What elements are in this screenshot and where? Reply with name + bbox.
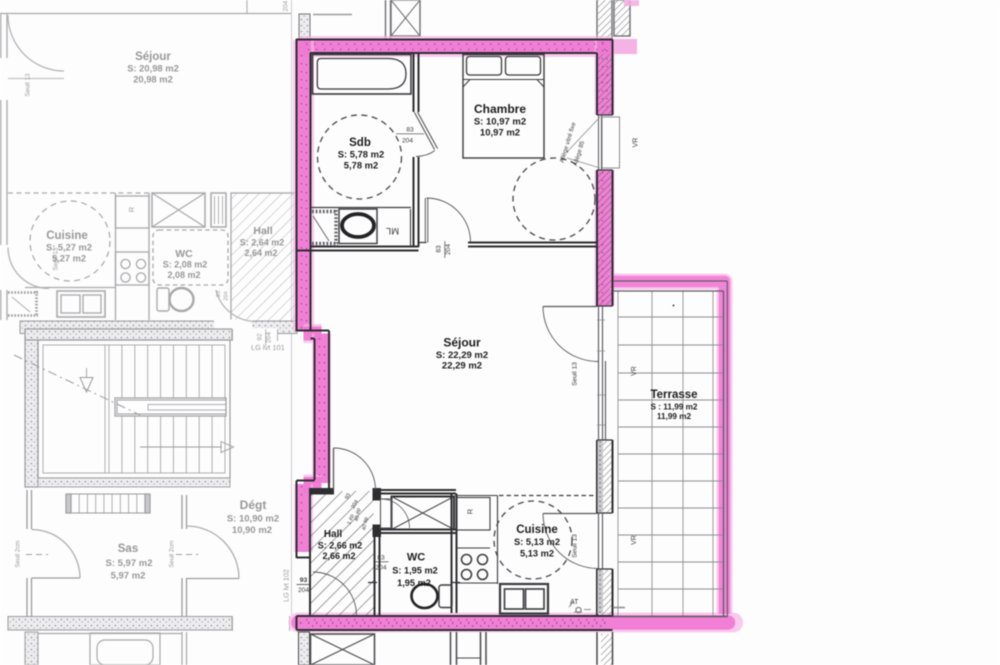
svg-text:Seuil 13: Seuil 13 (572, 534, 579, 558)
svg-text:92: 92 (257, 333, 264, 341)
svg-text:ML: ML (386, 225, 399, 236)
svg-text:S: 2,66 m2: S: 2,66 m2 (318, 541, 363, 551)
svg-text:Seuil 13: Seuil 13 (572, 362, 579, 386)
svg-text:10,97 m2: 10,97 m2 (480, 128, 520, 139)
svg-text:10,90 m2: 10,90 m2 (232, 525, 272, 536)
svg-text:WC: WC (407, 552, 425, 564)
svg-text:S: 5,78 m2: S: 5,78 m2 (338, 149, 384, 160)
svg-text:2,08 m2: 2,08 m2 (167, 270, 200, 280)
svg-text:83: 83 (377, 555, 385, 562)
svg-text:204: 204 (445, 244, 452, 255)
svg-text:Seuil 2cm: Seuil 2cm (169, 540, 176, 567)
svg-text:5,78 m2: 5,78 m2 (344, 160, 378, 171)
svg-text:1,95 m2: 1,95 m2 (397, 578, 431, 588)
svg-text:93: 93 (300, 577, 308, 584)
svg-text:S: 20,98 m2: S: 20,98 m2 (127, 63, 179, 74)
svg-text:VR: VR (631, 535, 638, 545)
svg-text:204: 204 (266, 332, 273, 343)
svg-text:R: R (127, 206, 136, 212)
svg-text:S : 11,99 m2: S : 11,99 m2 (651, 403, 698, 412)
svg-text:Terrasse: Terrasse (650, 389, 697, 401)
svg-text:LG lvt 102: LG lvt 102 (282, 569, 291, 602)
svg-text:83: 83 (406, 127, 414, 134)
svg-text:83: 83 (436, 245, 443, 253)
svg-text:204: 204 (283, 0, 290, 11)
svg-text:S: 1,95 m2: S: 1,95 m2 (392, 566, 437, 576)
svg-text:S: 2,08 m2: S: 2,08 m2 (163, 260, 208, 270)
svg-text:Chambre: Chambre (474, 102, 526, 116)
svg-text:Cuisine: Cuisine (516, 524, 558, 536)
svg-text:20,98 m2: 20,98 m2 (133, 74, 173, 85)
svg-text:R: R (466, 508, 475, 514)
svg-text:2,66 m2: 2,66 m2 (322, 551, 355, 561)
svg-text:VR: VR (633, 138, 640, 148)
svg-text:204: 204 (402, 138, 413, 145)
svg-text:Séjour: Séjour (443, 336, 481, 350)
svg-text:204: 204 (298, 587, 309, 594)
svg-text:WC: WC (175, 248, 193, 260)
svg-text:S: 10,97 m2: S: 10,97 m2 (474, 117, 526, 128)
svg-text:Sas: Sas (118, 543, 138, 555)
svg-text:Hall: Hall (324, 529, 343, 540)
svg-text:S: 2,64 m2: S: 2,64 m2 (240, 238, 285, 248)
svg-text:Seuil 13: Seuil 13 (25, 73, 32, 97)
svg-text:Dégt: Dégt (240, 498, 267, 512)
svg-text:204: 204 (375, 565, 386, 572)
svg-text:204: 204 (224, 291, 230, 300)
svg-text:S: 22,29 m2: S: 22,29 m2 (436, 350, 488, 361)
svg-text:83: 83 (216, 291, 222, 297)
svg-text:Seuil 2cm: Seuil 2cm (15, 540, 22, 567)
svg-text:5,97 m2: 5,97 m2 (111, 571, 146, 582)
svg-text:Hall: Hall (253, 225, 272, 237)
svg-text:S: 5,97 m2: S: 5,97 m2 (106, 558, 153, 569)
svg-text:VR: VR (631, 366, 638, 376)
svg-text:5,13 m2: 5,13 m2 (520, 549, 554, 559)
svg-text:S: 10,90 m2: S: 10,90 m2 (227, 514, 279, 525)
svg-text:AT: AT (570, 599, 579, 606)
svg-text:Seuil 13: Seuil 13 (53, 247, 60, 271)
svg-text:2,64 m2: 2,64 m2 (244, 248, 277, 258)
svg-text:11,99 m2: 11,99 m2 (657, 412, 692, 421)
svg-text:Séjour: Séjour (135, 51, 171, 63)
svg-text:22,29 m2: 22,29 m2 (442, 361, 482, 372)
svg-text:LG lvt 101: LG lvt 101 (251, 343, 285, 352)
svg-text:Cuisine: Cuisine (46, 230, 88, 242)
svg-text:S: 5,13 m2: S: 5,13 m2 (514, 537, 560, 547)
svg-text:Sdb: Sdb (349, 137, 371, 149)
